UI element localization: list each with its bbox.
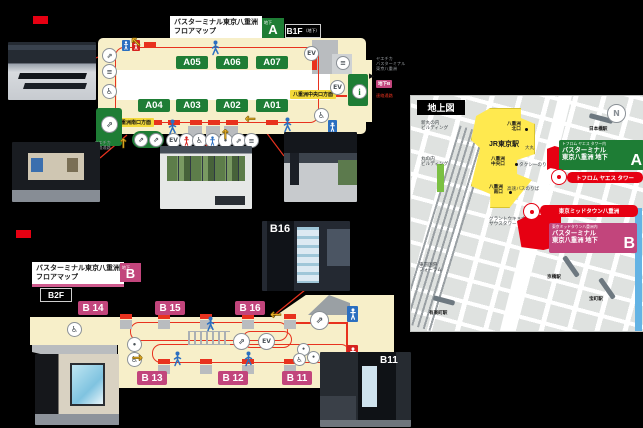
- midtown-pin-label: 東京ミッドタウン八重洲: [540, 205, 638, 217]
- photo-decor: [12, 190, 100, 202]
- central-exit-label: 八重洲中央口方面: [290, 90, 336, 99]
- wheelchair-glyph: ♿: [196, 136, 203, 145]
- photo-b1f-waiting-area: [8, 42, 96, 100]
- platform-stub: [158, 320, 170, 329]
- exit-dot: [515, 163, 518, 166]
- photo-decor: [8, 45, 96, 50]
- yaesu-south-exit-label: 八重洲 南口: [489, 184, 503, 195]
- area-a-badge: 地下 A: [262, 18, 284, 38]
- kyobashi-station-label: 京橋駅: [547, 274, 561, 279]
- exit-central-line2: 中央口: [491, 161, 505, 166]
- bus-stop-b14: B 14: [78, 301, 108, 315]
- escalator-icon: ⇗: [102, 48, 117, 63]
- walking-person-icon: [167, 119, 178, 135]
- escalator-icon: ⇗: [101, 116, 118, 133]
- walking-person-icon: [205, 316, 216, 332]
- callout-a-line2: 東京八重洲 地下: [562, 154, 641, 161]
- photo-decor: [215, 196, 244, 205]
- photo-decor: [23, 83, 87, 89]
- info-glyph: i: [358, 87, 361, 97]
- bus-stop-b11: B 11: [282, 371, 312, 385]
- terminal-a-callout: トフロム ヤエス タワー内 バスターミナル 東京八重洲 地下 A: [559, 140, 643, 170]
- bus-bay-marker: [208, 120, 220, 125]
- callout-a-line1: バスターミナル: [562, 147, 641, 154]
- shin-marunouchi-label: 新丸の内 ビルディング: [421, 120, 448, 131]
- photo-b1f-glass-lobby: [160, 146, 252, 209]
- smoking-glyph: •: [312, 354, 316, 361]
- bus-bay-marker: [190, 120, 202, 125]
- direction-arrow-up-icon: ↑: [118, 138, 129, 151]
- info-icon: i: [352, 84, 367, 99]
- bus-stop-b15: B 15: [155, 301, 185, 315]
- platform-stub: [242, 320, 254, 329]
- escalator-glyph: ⇗: [107, 52, 113, 60]
- escalator-icon: ⇗: [310, 311, 329, 330]
- elevator-glyph: EV: [262, 338, 271, 345]
- exit-arrow-icon: ▶: [369, 72, 374, 80]
- wheelchair-icon: ♿: [67, 322, 82, 337]
- platform-stub: [284, 320, 296, 329]
- wheelchair-glyph: ♿: [296, 356, 302, 364]
- b2f-title-line2: フロアマップ: [36, 273, 120, 282]
- b1f-floor-badge-text: B1F: [286, 26, 302, 36]
- b1f-side-note: ヤエチカ バスターミナル 東京八重洲 地下B 連絡通路: [376, 56, 416, 99]
- photo-decor: [320, 420, 411, 428]
- photo-decor: [31, 158, 42, 172]
- exit-north-line2: 北口: [507, 126, 521, 131]
- photo-decor: [35, 414, 119, 425]
- daimaru-label: 大丸: [525, 145, 534, 150]
- photo-b16-pillar-label: B16: [270, 223, 290, 235]
- entrance-arrow-left-icon: ←: [270, 308, 282, 322]
- bus-stop-b16: B 16: [235, 301, 265, 315]
- taxi-stand-label: タクシーのりば: [519, 162, 551, 167]
- bus-bay-marker: [284, 314, 296, 319]
- side-note-line3: 東京八重洲: [376, 66, 416, 71]
- photo-decor: [362, 366, 377, 407]
- walking-person-icon: [243, 351, 254, 367]
- stairs-glyph: ≡: [107, 68, 113, 76]
- photo-decor: [338, 160, 357, 185]
- elevator-icon: EV: [330, 80, 345, 95]
- area-b-badge: 地下 B: [120, 263, 141, 282]
- nihombashi-station-label: 日本橋駅: [589, 126, 607, 131]
- bus-bay-marker: [200, 359, 212, 364]
- escalator-glyph: ⇗: [238, 337, 245, 346]
- yaesu-north-exit-label: 八重洲 北口: [507, 121, 521, 132]
- photo-b2f-stop-b16: B16: [262, 221, 350, 291]
- escalator-icon: ⇗: [134, 133, 148, 147]
- tokyo-station-label: JR東京駅: [489, 142, 519, 147]
- stairs-glyph: ≡: [340, 59, 346, 67]
- walking-person-icon: [172, 351, 183, 367]
- compass-icon: N: [607, 104, 626, 123]
- exit-dot: [509, 191, 512, 194]
- mens-toilet-icon: [347, 306, 358, 322]
- bus-stop-a01: A01: [256, 99, 288, 112]
- photo-b1f-gate-area: [12, 142, 100, 202]
- callout-b-letter: B: [623, 236, 635, 252]
- b1f-information-booth: i: [348, 74, 368, 106]
- elevator-glyph: EV: [307, 50, 316, 57]
- photo-b1f-corridor: [284, 132, 357, 202]
- escalator-icon: ⇗: [233, 333, 250, 350]
- elevator-glyph: EV: [333, 84, 342, 91]
- entrance-arrow-right-icon: →: [132, 352, 143, 365]
- wheelchair-glyph: ♿: [318, 111, 325, 120]
- ground-level-map: JR東京駅 八重洲 北口 八重洲 中央口 八重洲 南口 新丸の内 ビルディング …: [410, 95, 643, 332]
- stairs-icon: ≡: [102, 64, 117, 79]
- maru-line2: ビルディング: [421, 161, 448, 166]
- escalator-glyph: ⇗: [153, 136, 159, 144]
- park-strip: [437, 164, 444, 192]
- bus-bay-marker: [226, 120, 238, 125]
- callout-b-line1: バスターミナル: [552, 230, 634, 237]
- stairs-icon: ≡: [336, 56, 350, 70]
- elevator-icon: EV: [304, 46, 319, 61]
- escalator-icon: ⇗: [149, 133, 163, 147]
- section-bullet-b1f: [33, 16, 48, 24]
- wheelchair-icon: ♿: [293, 353, 306, 366]
- bus-bay-marker: [266, 120, 278, 125]
- yaesu-central-exit-label: 八重洲 中央口: [491, 156, 505, 167]
- platform-stub: [200, 365, 212, 374]
- b2f-title-line1: バスターミナル東京八重洲: [36, 264, 120, 273]
- ground-map-title: 地上図: [417, 100, 465, 115]
- bus-bay-marker: [144, 42, 156, 47]
- bus-stop-a03: A03: [176, 99, 208, 112]
- elevator-icon: EV: [258, 333, 275, 350]
- walking-person-icon: [210, 40, 221, 56]
- wheelchair-glyph: ♿: [71, 325, 78, 334]
- intl-forum-label: 東京国際 フォーラム: [419, 262, 442, 273]
- photo-decor: [67, 158, 78, 172]
- takaracho-station-label: 宝町駅: [589, 296, 603, 301]
- escalator-glyph: ⇗: [138, 136, 144, 144]
- compass-glyph: N: [613, 109, 620, 118]
- bus-stop-a05: A05: [176, 56, 208, 69]
- photo-decor: [290, 153, 299, 185]
- smoking-room-icon: •: [307, 351, 320, 364]
- bus-stop-a04: A04: [138, 99, 170, 112]
- area-a-badge-small: 地下: [264, 20, 272, 26]
- bus-stop-a02: A02: [216, 99, 248, 112]
- tower-map-pin: [551, 169, 567, 185]
- photo-decor: [297, 227, 319, 283]
- photo-decor: [18, 73, 87, 79]
- forum-line2: フォーラム: [419, 267, 442, 272]
- section-bullet-b2f: [16, 230, 31, 238]
- tower-pin-label: トフロム ヤエス タワー: [567, 172, 643, 183]
- elevator-glyph: EV: [169, 137, 178, 144]
- photo-b11-pillar-label: B11: [380, 355, 398, 366]
- information-display-icon: •: [127, 337, 142, 352]
- photo-decor: [327, 229, 350, 265]
- wheelchair-icon: ♿: [102, 84, 117, 99]
- direction-arrow-up-left-icon: ↖: [130, 36, 142, 50]
- bus-bay-marker: [120, 314, 132, 319]
- highway-bus-stand-label: 高速バスのりば: [507, 186, 539, 191]
- bus-bay-marker: [158, 359, 170, 364]
- wheelchair-glyph: ♿: [106, 87, 113, 96]
- bus-stop-a07: A07: [256, 56, 288, 69]
- b1f-floor-badge-sub: （地下）: [304, 28, 320, 34]
- marunouchi-label: 丸の内 ビルディング: [421, 156, 448, 167]
- direction-arrow-left-icon: ←: [245, 113, 256, 126]
- bus-stop-b12: B 12: [218, 371, 248, 385]
- callout-b-line2: 東京八重洲 地下: [552, 237, 634, 244]
- yurakucho-station-label: 有楽町駅: [429, 310, 447, 315]
- exit-dot: [525, 128, 528, 131]
- photo-b2f-wall-display: [35, 354, 119, 425]
- b1f-title-line2: フロアマップ: [174, 27, 258, 36]
- escalator-glyph: ⇗: [106, 120, 113, 129]
- exit-south-line2: 南口: [489, 189, 503, 194]
- mens-toilet-icon: [122, 40, 130, 51]
- escalator-glyph: ⇗: [316, 316, 324, 326]
- wheelchair-icon: ♿: [314, 108, 329, 123]
- photo-decor: [70, 363, 104, 406]
- stairs-glyph: ≡: [249, 137, 255, 145]
- platform-stub: [120, 320, 132, 329]
- guide-map-page: バスターミナル東京八重洲 フロアマップ 地下 A B1F （地下） A05 A0…: [0, 0, 643, 428]
- direction-arrow-up-icon: ↑: [220, 129, 231, 142]
- area-b-badge-small: 地下: [122, 265, 130, 271]
- shin-maru-line2: ビルディング: [421, 125, 448, 130]
- midtown-map-pin: [523, 203, 540, 220]
- b2f-map-title: バスターミナル東京八重洲 フロアマップ: [32, 262, 124, 287]
- display-glyph: •: [132, 341, 136, 349]
- bus-stop-a06: A06: [216, 56, 248, 69]
- nursing-glyph: •: [302, 346, 306, 353]
- escalator-bank: [188, 331, 230, 345]
- b1f-title-line1: バスターミナル東京八重洲: [174, 18, 258, 27]
- bus-stop-b13: B 13: [137, 371, 167, 385]
- photo-b2f-stop-b11: B11: [320, 352, 411, 427]
- terminal-b-callout: 東京ミッドタウン八重洲内 バスターミナル 東京八重洲 地下 B: [549, 223, 637, 253]
- side-note-area-b-badge: 地下B: [376, 80, 392, 88]
- escalator-glyph: ⇗: [236, 137, 242, 145]
- walking-person-icon: [282, 117, 293, 133]
- photo-decor: [167, 156, 244, 181]
- callout-a-letter: A: [630, 153, 642, 169]
